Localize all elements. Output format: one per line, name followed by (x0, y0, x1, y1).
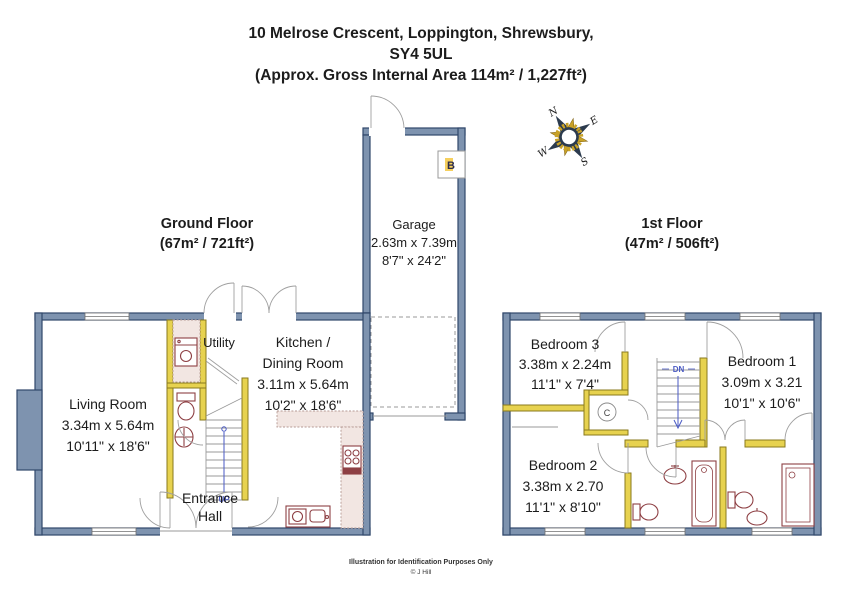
ensuite-sink-icon (747, 508, 767, 525)
title-block: 10 Melrose Crescent, Loppington, Shrewsb… (248, 25, 593, 84)
window (752, 528, 792, 535)
garage-ref-box: B (438, 151, 465, 178)
bedroom3-name: Bedroom 3 (531, 336, 600, 352)
kitchen-doors-opening (242, 312, 296, 321)
compass-s-label: S (579, 156, 591, 169)
garage-dim-imperial: 8'7" x 24'2" (382, 253, 446, 268)
bedroom2-name: Bedroom 2 (529, 457, 598, 473)
living-dim-metric: 3.34m x 5.64m (62, 417, 155, 433)
window (540, 313, 580, 320)
ground-floor-plan: UP (17, 283, 370, 536)
kitchen-counter-right (341, 427, 363, 528)
garage-door-arc (371, 96, 404, 128)
kitchen-sink-icon (286, 506, 330, 527)
bedroom1-dim-imperial: 10'1" x 10'6" (724, 395, 801, 411)
garage-door-opening (369, 127, 405, 136)
living-room-label: Living Room 3.34m x 5.64m 10'11" x 18'6" (62, 396, 155, 454)
back-door-opening (204, 312, 236, 321)
footer-line-2: © J Hill (411, 568, 432, 576)
garage-dashed-area (371, 317, 455, 407)
compass-e-label: E (588, 114, 601, 128)
footer: Illustration for Identification Purposes… (349, 559, 493, 576)
ensuite-toilet-icon (728, 492, 753, 508)
window (740, 313, 780, 320)
window (545, 528, 585, 535)
cupboard-label: C (604, 408, 611, 418)
stairs-up: UP (206, 398, 242, 504)
bedroom3-dim-imperial: 11'1" x 7'4" (531, 376, 599, 392)
bedroom1-label: Bedroom 1 3.09m x 3.21 10'1" x 10'6" (722, 353, 803, 411)
sink-icon (175, 427, 193, 447)
garage-plan: B Garage 2.63m x 7.39m 8'7" x 24'2" (363, 96, 465, 420)
kitchen-name-1: Kitchen / (276, 334, 331, 350)
bedroom2-label: Bedroom 2 3.38m x 2.70 11'1" x 8'10" (523, 457, 604, 515)
cupboard-ref: C (598, 403, 616, 421)
first-floor-plan: C DN (503, 313, 821, 535)
bedroom1-dim-metric: 3.09m x 3.21 (722, 374, 803, 390)
bedroom2-dim-metric: 3.38m x 2.70 (523, 478, 604, 494)
stairs-down-label: DN (673, 365, 685, 374)
living-dim-imperial: 10'11" x 18'6" (66, 438, 150, 454)
hall-line-1: Entrance (182, 490, 238, 506)
compass-icon: N E S W (521, 90, 617, 186)
title-line-2: SY4 5UL (390, 46, 453, 63)
window (92, 528, 136, 535)
bathroom-sink-icon (664, 465, 686, 484)
window (85, 313, 129, 320)
garage-dim-metric: 2.63m x 7.39m (371, 235, 457, 250)
compass-n-label: N (546, 105, 561, 120)
kitchen-counter-top (277, 411, 363, 427)
footer-line-1: Illustration for Identification Purposes… (349, 559, 493, 566)
first-floor-name: 1st Floor (641, 216, 703, 232)
ground-floor-area: (67m² / 721ft²) (160, 236, 254, 252)
ground-floor-name: Ground Floor (161, 216, 254, 232)
garage-ref-label: B (447, 160, 455, 172)
title-line-3: (Approx. Gross Internal Area 114m² / 1,2… (255, 67, 587, 84)
bedroom1-name: Bedroom 1 (728, 353, 797, 369)
window (645, 313, 685, 320)
window (645, 528, 685, 535)
bedroom3-dim-metric: 3.38m x 2.24m (519, 356, 612, 372)
garage-label: Garage 2.63m x 7.39m 8'7" x 24'2" (371, 217, 457, 268)
hob-icon (343, 446, 361, 474)
hall-line-2: Hall (198, 508, 222, 524)
kitchen-name-2: Dining Room (263, 355, 344, 371)
bathroom-toilet-icon (633, 504, 658, 520)
first-floor-area: (47m² / 506ft²) (625, 236, 719, 252)
bay-window-block (17, 390, 42, 470)
floorplan-page: 10 Melrose Crescent, Loppington, Shrewsb… (0, 0, 842, 595)
shower-icon (782, 464, 814, 526)
entrance-hall-label: Entrance Hall (182, 490, 238, 524)
kitchen-dim-metric: 3.11m x 5.64m (257, 376, 349, 392)
title-line-1: 10 Melrose Crescent, Loppington, Shrewsb… (248, 25, 593, 42)
utility-label: Utility (203, 335, 235, 350)
washing-machine-icon (175, 338, 197, 366)
living-name: Living Room (69, 396, 147, 412)
floorplan-drawing: 10 Melrose Crescent, Loppington, Shrewsb… (0, 0, 842, 595)
compass-w-label: W (536, 145, 551, 160)
toilet-icon (177, 393, 195, 420)
garage-name: Garage (392, 217, 435, 232)
bedroom2-dim-imperial: 11'1" x 8'10" (525, 499, 601, 515)
kitchen-dim-imperial: 10'2" x 18'6" (265, 397, 342, 413)
bath-icon (692, 461, 716, 526)
kitchen-label: Kitchen / Dining Room 3.11m x 5.64m 10'2… (257, 334, 349, 413)
bedroom3-label: Bedroom 3 3.38m x 2.24m 11'1" x 7'4" (519, 336, 612, 392)
stairs-down: DN (657, 358, 700, 447)
